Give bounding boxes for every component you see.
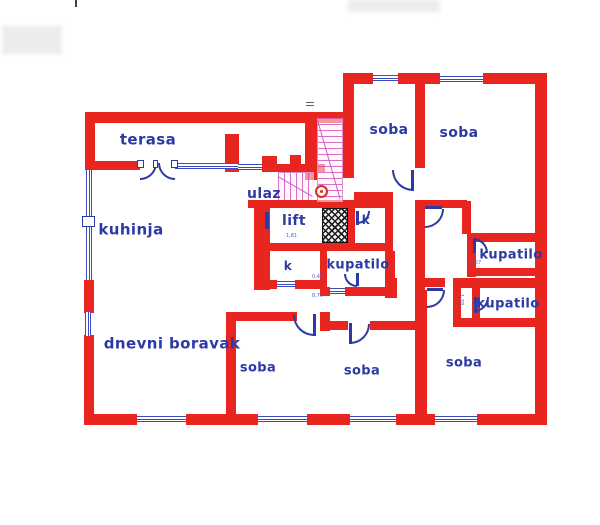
wall bbox=[396, 414, 435, 425]
section-marker-dot bbox=[320, 190, 323, 193]
room-label-soba-bottom-middle: soba bbox=[344, 365, 380, 378]
door-post bbox=[82, 216, 95, 227]
room-label-soba-top-right: soba bbox=[439, 126, 478, 140]
wall bbox=[415, 290, 427, 415]
room-label-terasa: terasa bbox=[120, 133, 176, 148]
wall bbox=[343, 84, 354, 178]
window bbox=[85, 312, 91, 336]
door-arc bbox=[427, 290, 445, 308]
window bbox=[330, 288, 345, 294]
window bbox=[350, 416, 396, 422]
wall bbox=[415, 84, 425, 168]
floor-plan: terasakuhinjaulazliftkkupatilokkupatilok… bbox=[0, 0, 600, 525]
door-leaf bbox=[427, 288, 443, 291]
wall bbox=[307, 414, 350, 425]
window bbox=[373, 75, 398, 81]
dimension-tick bbox=[306, 105, 314, 106]
door-leaf bbox=[356, 211, 359, 225]
room-label-soba-top-left: soba bbox=[369, 123, 408, 137]
wall bbox=[328, 321, 348, 330]
door-leaf bbox=[313, 314, 316, 336]
room-label-kupatilo-right-upper: kupatilo bbox=[479, 249, 542, 262]
door-leaf bbox=[411, 170, 414, 191]
dimension-text: 1,78 bbox=[458, 294, 463, 305]
wall bbox=[305, 112, 317, 180]
door-leaf bbox=[425, 206, 442, 209]
door-arc bbox=[425, 209, 444, 228]
window bbox=[277, 281, 295, 287]
window bbox=[175, 163, 238, 169]
wall bbox=[453, 318, 535, 327]
wall bbox=[263, 243, 393, 251]
door-arc bbox=[392, 170, 413, 191]
room-label-k-upper: k bbox=[362, 214, 370, 226]
wall bbox=[398, 73, 440, 84]
dimension-tick bbox=[306, 102, 314, 103]
wall bbox=[84, 280, 94, 313]
scan-artifact bbox=[2, 26, 62, 54]
door-post bbox=[137, 160, 144, 168]
window bbox=[440, 76, 483, 82]
wall bbox=[477, 414, 547, 425]
dimension-text: 1,81 bbox=[286, 234, 297, 239]
room-label-ulaz: ulaz bbox=[247, 187, 281, 201]
room-label-soba-bottom-left: soba bbox=[240, 362, 276, 375]
wall bbox=[290, 155, 301, 164]
wall bbox=[467, 268, 535, 276]
door-arc bbox=[350, 324, 370, 344]
room-label-kupatilo-right-lower: kupatilo bbox=[476, 298, 539, 311]
window bbox=[238, 164, 262, 170]
elevator-shaft-hatch bbox=[322, 208, 348, 243]
wall bbox=[343, 73, 373, 84]
wall bbox=[415, 200, 425, 290]
door-arc bbox=[293, 315, 314, 336]
wall bbox=[226, 312, 236, 415]
wall bbox=[226, 312, 297, 321]
door-leaf bbox=[265, 212, 269, 229]
door-leaf bbox=[349, 323, 352, 344]
dimension-text: 3,67 bbox=[470, 261, 481, 266]
window bbox=[435, 416, 477, 422]
window bbox=[258, 416, 307, 422]
wall bbox=[423, 278, 445, 287]
door-post bbox=[153, 160, 158, 168]
room-label-kupatilo-center: kupatilo bbox=[326, 259, 389, 272]
wall bbox=[462, 201, 471, 234]
room-label-soba-bottom-right: soba bbox=[446, 357, 482, 370]
wall bbox=[453, 278, 547, 288]
room-label-k-lower: k bbox=[284, 260, 292, 272]
scan-artifact bbox=[348, 0, 440, 12]
dimension-text: 0,48 bbox=[312, 275, 323, 280]
wall bbox=[345, 287, 390, 296]
window bbox=[137, 416, 186, 422]
wall bbox=[370, 321, 415, 330]
room-label-dnevni-boravak: dnevni boravak bbox=[104, 337, 240, 352]
wall bbox=[186, 414, 258, 425]
wall bbox=[354, 192, 393, 200]
door-leaf bbox=[356, 273, 359, 286]
scan-artifact bbox=[75, 0, 77, 7]
door-leaf bbox=[473, 238, 476, 253]
room-label-kuhinja: kuhinja bbox=[98, 223, 163, 238]
door-post bbox=[171, 160, 178, 168]
wall bbox=[84, 335, 94, 425]
dimension-text: 8,75 bbox=[312, 294, 323, 299]
room-label-lift: lift bbox=[282, 214, 306, 228]
wall bbox=[85, 161, 140, 170]
